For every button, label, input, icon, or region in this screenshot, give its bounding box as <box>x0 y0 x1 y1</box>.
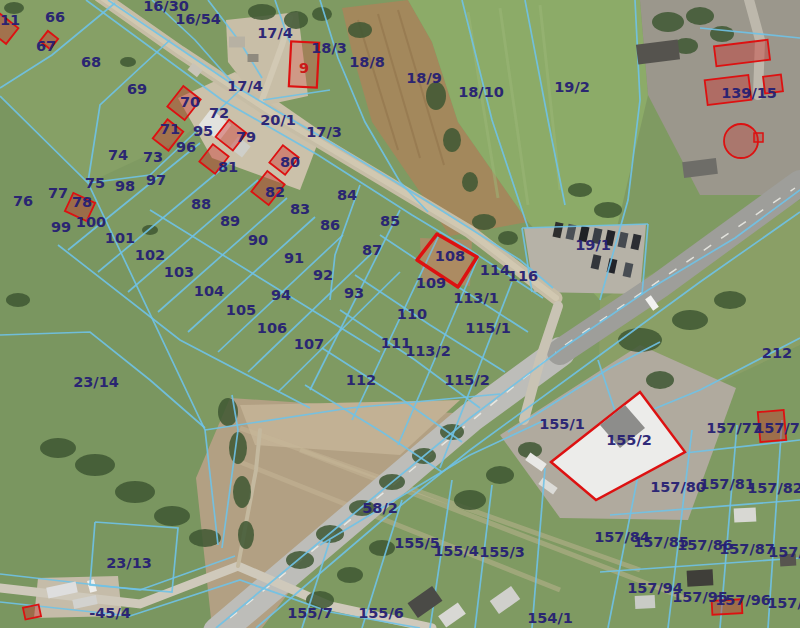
parcel-label-157-80: 157/80 <box>650 479 706 495</box>
parcel-label-101: 101 <box>105 230 135 246</box>
parcel-label-109: 109 <box>416 275 446 291</box>
parcel-label-155-1: 155/1 <box>539 416 585 432</box>
tree <box>454 490 486 510</box>
parcel-label-78: 78 <box>72 194 92 210</box>
parcel-label-154-1: 154/1 <box>527 610 573 626</box>
parcel-label-94: 94 <box>271 287 291 303</box>
tree <box>686 7 714 25</box>
parcel-label-84: 84 <box>337 187 357 203</box>
parcel-label-157-9: 157/9 <box>767 595 800 611</box>
map-canvas[interactable]: 116667686916/3016/5417/417/4918/318/818/… <box>0 0 800 628</box>
parcel-label-66: 66 <box>45 9 65 25</box>
parcel-label-18-10: 18/10 <box>458 84 504 100</box>
parcel-label-99: 99 <box>51 219 71 235</box>
parcel-label-108: 108 <box>435 248 465 264</box>
parcel-label-212: 212 <box>762 345 792 361</box>
parcel-label-98: 98 <box>115 178 135 194</box>
parcel-label-88: 88 <box>191 196 211 212</box>
parcel-label-106: 106 <box>257 320 287 336</box>
tree <box>498 231 518 245</box>
map-viewport: 116667686916/3016/5417/417/4918/318/818/… <box>0 0 800 628</box>
parcel-label-17-4: 17/4 <box>227 78 263 94</box>
building <box>687 569 714 586</box>
parcel-label-157-8: 157/8 <box>768 544 800 560</box>
parcel-label--45-4: -45/4 <box>89 605 131 621</box>
parcel-label-112: 112 <box>346 372 376 388</box>
parcel-label-91: 91 <box>284 250 304 266</box>
parcel-label-157-78: 157/78 <box>754 420 800 436</box>
parcel-label-19-1: 19/1 <box>575 237 611 253</box>
building <box>229 37 245 48</box>
tree <box>75 454 115 476</box>
parcel-label-155-7: 155/7 <box>287 605 333 621</box>
parcel-label-97: 97 <box>146 172 166 188</box>
parcel-label-86: 86 <box>320 217 340 233</box>
building <box>635 595 656 609</box>
parcel-label-115-2: 115/2 <box>444 372 490 388</box>
parcel-label-18-9: 18/9 <box>406 70 442 86</box>
parcel-label-157-82: 157/82 <box>747 480 800 496</box>
parcel-label-23-14: 23/14 <box>73 374 119 390</box>
tree <box>6 293 30 307</box>
parcel-label-115-1: 115/1 <box>465 320 511 336</box>
parcel-label-18-8: 18/8 <box>349 54 385 70</box>
parcel-label-87: 87 <box>362 242 382 258</box>
parcel-label-73: 73 <box>143 149 163 165</box>
tree <box>443 128 461 152</box>
parcel-label-107: 107 <box>294 336 324 352</box>
parcel-label-58-2: 58/2 <box>362 500 398 516</box>
parcel-label-113-2: 113/2 <box>405 343 451 359</box>
parcel-label-155-4: 155/4 <box>433 543 479 559</box>
parcel-label-114: 114 <box>480 262 510 278</box>
parcel-label-157-96: 157/96 <box>715 592 771 608</box>
parcel-label-92: 92 <box>313 267 333 283</box>
tree <box>568 183 592 197</box>
parcel-label-83: 83 <box>290 201 310 217</box>
tree <box>486 466 514 484</box>
parcel-label-17-3: 17/3 <box>306 124 342 140</box>
parcel-label-19-2: 19/2 <box>554 79 590 95</box>
parcel-label-110: 110 <box>397 306 427 322</box>
parcel-label-155-2: 155/2 <box>606 432 652 448</box>
parcel-label-157-87: 157/87 <box>719 541 775 557</box>
red-building[interactable] <box>23 604 41 619</box>
tree <box>426 82 446 110</box>
parcel-label-77: 77 <box>48 185 68 201</box>
tree <box>462 172 478 192</box>
parcel-label-96: 96 <box>176 139 196 155</box>
red-tank-annex[interactable] <box>754 133 763 142</box>
parcel-label-23-13: 23/13 <box>106 555 152 571</box>
parcel-label-18-3: 18/3 <box>311 40 347 56</box>
parcel-label-81: 81 <box>218 159 238 175</box>
parcel-label-68: 68 <box>81 54 101 70</box>
tree <box>348 22 372 38</box>
building <box>734 507 757 522</box>
tree <box>120 57 136 67</box>
parcel-label-17-4: 17/4 <box>257 25 293 41</box>
parcel-label-100: 100 <box>76 214 106 230</box>
parcel-label-113-1: 113/1 <box>453 290 499 306</box>
parcel-label-72: 72 <box>209 105 229 121</box>
parcel-label-85: 85 <box>380 213 400 229</box>
tree <box>618 328 662 352</box>
parcel-label-11: 11 <box>0 12 20 28</box>
tree <box>472 214 496 230</box>
parcel-label-76: 76 <box>13 193 33 209</box>
parcel-label-70: 70 <box>180 94 200 110</box>
tree <box>714 291 746 309</box>
parcel-label-74: 74 <box>108 147 128 163</box>
parcel-label-116: 116 <box>508 268 538 284</box>
tree <box>115 481 155 503</box>
tree <box>652 12 684 32</box>
tree <box>337 567 363 583</box>
parcel-label-102: 102 <box>135 247 165 263</box>
parcel-label-139-15: 139/15 <box>721 85 777 101</box>
tree <box>248 4 276 20</box>
parcel-label-82: 82 <box>265 184 285 200</box>
tree <box>40 438 76 458</box>
parcel-label-89: 89 <box>220 213 240 229</box>
parcel-label-75: 75 <box>85 175 105 191</box>
tree <box>233 476 251 508</box>
parcel-label-20-1: 20/1 <box>260 112 296 128</box>
parcel-label-105: 105 <box>226 302 256 318</box>
tree <box>594 202 622 218</box>
tree <box>369 540 395 556</box>
red-tank-building[interactable] <box>724 124 758 158</box>
tree <box>646 371 674 389</box>
tree <box>672 310 708 330</box>
parcel-label-95: 95 <box>193 123 213 139</box>
parcel-label-9: 9 <box>299 60 309 76</box>
parcel-label-71: 71 <box>160 121 180 137</box>
parcel-label-80: 80 <box>280 154 300 170</box>
parcel-label-104: 104 <box>194 283 224 299</box>
tree <box>229 432 247 464</box>
parcel-label-69: 69 <box>127 81 147 97</box>
parcel-label-103: 103 <box>164 264 194 280</box>
tree <box>238 521 254 549</box>
parcel-label-79: 79 <box>236 129 256 145</box>
parcel-label-67: 67 <box>36 38 56 54</box>
parcel-label-155-3: 155/3 <box>479 544 525 560</box>
parcel-label-93: 93 <box>344 285 364 301</box>
building <box>248 54 259 62</box>
parcel-label-16-54: 16/54 <box>175 11 221 27</box>
tree <box>710 26 734 42</box>
parcel-label-90: 90 <box>248 232 268 248</box>
parcel-label-155-6: 155/6 <box>358 605 404 621</box>
tree <box>154 506 190 526</box>
